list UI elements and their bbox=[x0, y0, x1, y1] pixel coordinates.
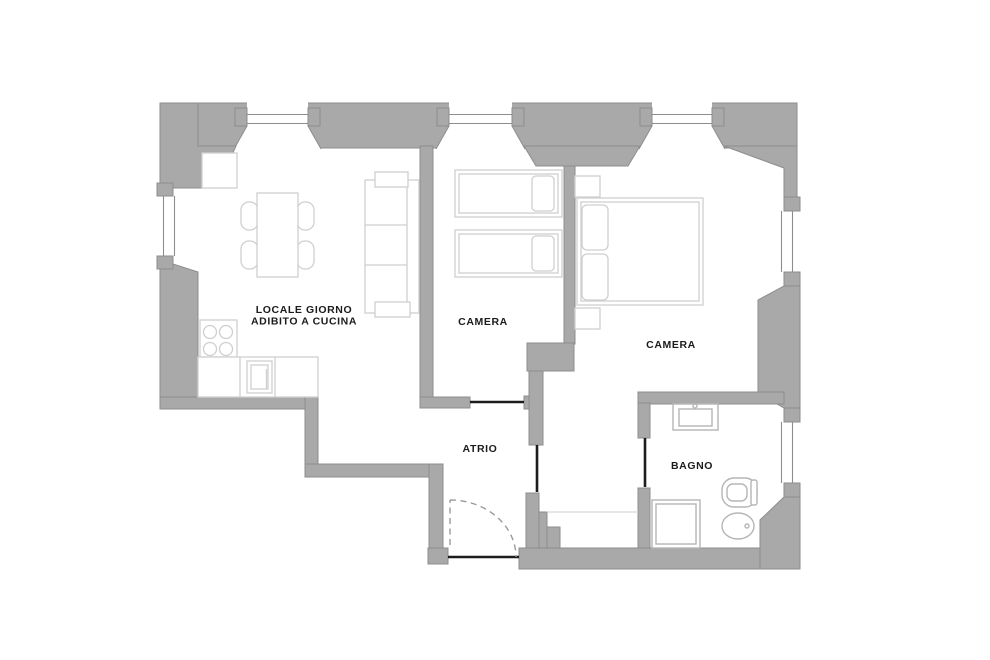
floor-plan-canvas: LOCALE GIORNO ADIBITO A CUCINA CAMERA CA… bbox=[0, 0, 990, 660]
oven bbox=[247, 361, 272, 393]
wall-segment bbox=[638, 488, 650, 548]
room-label-bedroom-1: CAMERA bbox=[458, 316, 508, 328]
window-jamb bbox=[640, 108, 652, 126]
dining-chair bbox=[297, 241, 314, 269]
cooktop bbox=[200, 320, 237, 357]
wall-segment bbox=[160, 397, 318, 409]
furniture bbox=[198, 153, 703, 397]
wall-segment bbox=[529, 368, 543, 445]
window-jamb bbox=[437, 108, 449, 126]
wall-segment bbox=[758, 286, 800, 408]
pillow bbox=[582, 205, 608, 250]
bathroom-fixtures bbox=[652, 404, 757, 548]
nightstand bbox=[575, 176, 600, 197]
room-label-bathroom: BAGNO bbox=[671, 460, 713, 472]
window-jamb bbox=[784, 272, 800, 286]
wall-segment bbox=[305, 464, 443, 477]
wall-segment bbox=[724, 146, 797, 198]
window bbox=[782, 408, 801, 497]
double-bed bbox=[575, 176, 703, 329]
nightstand bbox=[575, 308, 600, 329]
window-jamb bbox=[512, 108, 524, 126]
sofa bbox=[365, 172, 419, 317]
shower bbox=[652, 500, 700, 548]
bidet bbox=[722, 513, 754, 539]
floor-plan: LOCALE GIORNO ADIBITO A CUCINA CAMERA CA… bbox=[0, 0, 990, 660]
window-jamb bbox=[308, 108, 320, 126]
wall-segment bbox=[638, 403, 650, 438]
window-jamb bbox=[712, 108, 724, 126]
dining-table bbox=[257, 193, 298, 277]
single-bed bbox=[455, 230, 562, 277]
window-jamb bbox=[784, 408, 800, 422]
wall-segment bbox=[539, 512, 547, 548]
window-jamb bbox=[784, 197, 800, 211]
toilet bbox=[722, 478, 757, 507]
pillow bbox=[582, 254, 608, 300]
window-jamb bbox=[157, 183, 173, 196]
entry-door-swing bbox=[450, 500, 516, 557]
dining-chair bbox=[241, 202, 258, 230]
room-label-hall: ATRIO bbox=[463, 443, 498, 455]
single-bed bbox=[455, 170, 562, 217]
washbasin bbox=[673, 404, 718, 430]
dining-chair bbox=[297, 202, 314, 230]
wall-segment bbox=[527, 343, 574, 371]
corner-cabinet bbox=[202, 153, 237, 188]
wall-segment bbox=[526, 493, 539, 548]
wall-segment bbox=[760, 497, 800, 569]
wall-segment bbox=[564, 163, 575, 344]
wall-segment bbox=[420, 146, 433, 397]
wall-segment bbox=[160, 264, 198, 409]
wall-segment bbox=[519, 548, 800, 569]
wall-segment bbox=[428, 548, 448, 564]
room-label-living-line1: LOCALE GIORNO bbox=[256, 304, 352, 316]
window-jamb bbox=[157, 256, 173, 269]
room-label-living-line2: ADIBITO A CUCINA bbox=[251, 316, 357, 328]
room-label-bedroom-2: CAMERA bbox=[646, 339, 696, 351]
wall-segment bbox=[429, 464, 443, 548]
window bbox=[157, 183, 175, 269]
wall-segment bbox=[420, 397, 470, 408]
dining-chair bbox=[241, 241, 258, 269]
wall-segment bbox=[524, 146, 640, 166]
window-jamb bbox=[235, 108, 247, 126]
wall-segment bbox=[638, 392, 784, 404]
wall-segment bbox=[547, 527, 560, 548]
window bbox=[782, 197, 801, 286]
window-jamb bbox=[784, 483, 800, 497]
